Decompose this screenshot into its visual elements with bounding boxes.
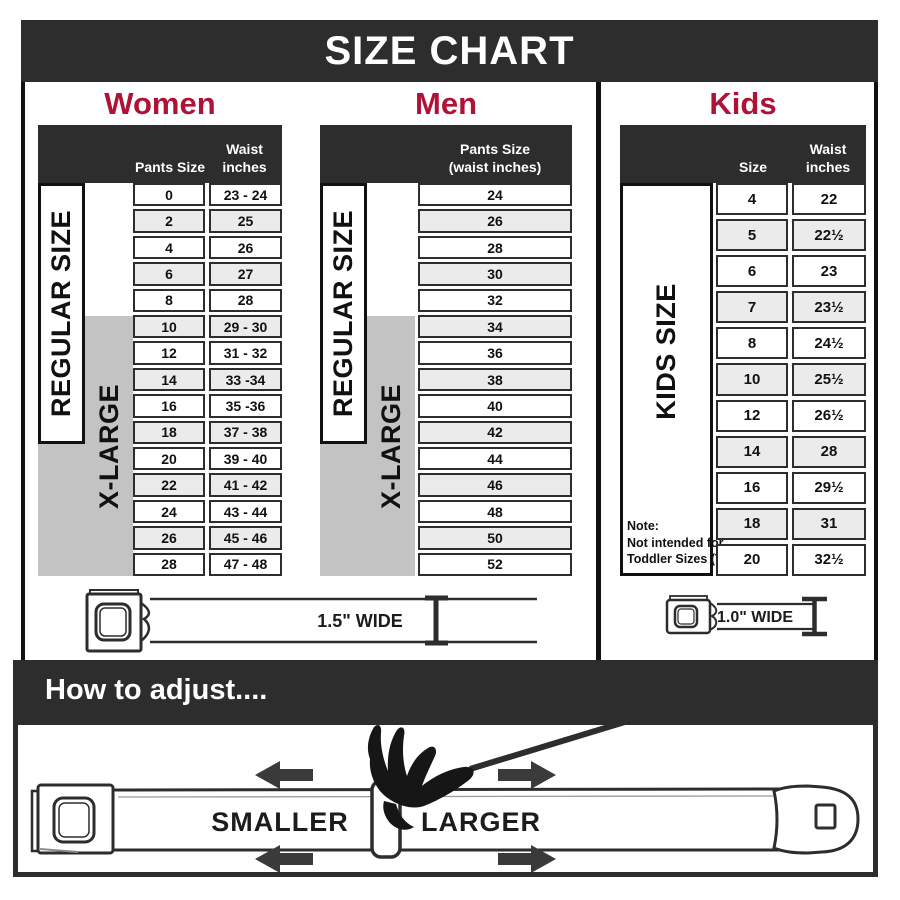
table-row: 28 47 - 48 <box>133 553 282 576</box>
waist-inches-cell: 32½ <box>792 544 866 576</box>
pants-size-cell: 10 <box>133 315 205 338</box>
pants-size-cell: 48 <box>418 500 572 523</box>
kids-note: Note: Not intended for Toddler Sizes (T) <box>627 518 727 567</box>
table-row: 6 27 <box>133 262 282 285</box>
title-banner: SIZE CHART <box>21 20 878 82</box>
size-cell: 14 <box>716 436 788 468</box>
men-table-header: Pants Size (waist inches) <box>320 125 572 183</box>
waist-inches-cell: 41 - 42 <box>209 473 282 496</box>
measurement-bracket-icon <box>425 598 448 643</box>
kids-col-waist-inches: Waist inches <box>790 141 866 176</box>
table-row: 46 <box>418 473 572 496</box>
pants-size-cell: 28 <box>418 236 572 259</box>
frame-left-border <box>21 82 25 660</box>
seatbelt-buckle-icon <box>667 596 716 633</box>
pants-size-cell: 40 <box>418 394 572 417</box>
table-row: 30 <box>418 262 572 285</box>
pants-size-cell: 26 <box>418 209 572 232</box>
pants-size-cell: 4 <box>133 236 205 259</box>
kids-heading: Kids <box>620 86 866 122</box>
seatbelt-buckle-icon <box>87 590 149 651</box>
table-row: 26 45 - 46 <box>133 526 282 549</box>
pants-size-cell: 52 <box>418 553 572 576</box>
table-row: 24 <box>418 183 572 206</box>
men-regular-size-label: REGULAR SIZE <box>328 210 359 417</box>
waist-inches-cell: 22½ <box>792 219 866 251</box>
table-row: 14 33 -34 <box>133 368 282 391</box>
table-row: 36 <box>418 341 572 364</box>
waist-inches-cell: 29 - 30 <box>209 315 282 338</box>
women-col-pants-size: Pants Size <box>133 159 207 177</box>
pants-size-cell: 38 <box>418 368 572 391</box>
table-row: 18 37 - 38 <box>133 421 282 444</box>
pants-size-cell: 24 <box>133 500 205 523</box>
table-row: 6 23 <box>716 255 866 287</box>
adjust-illustration: SMALLER LARGER <box>18 725 873 872</box>
table-row: 50 <box>418 526 572 549</box>
table-row: 8 28 <box>133 289 282 312</box>
pants-size-cell: 18 <box>133 421 205 444</box>
pants-size-cell: 24 <box>418 183 572 206</box>
kids-section-divider <box>596 82 601 660</box>
table-row: 10 25½ <box>716 363 866 395</box>
men-size-table: 24 26 28 30 32 34 36 38 40 42 44 46 <box>418 183 572 576</box>
women-xlarge-label: X-LARGE <box>94 384 125 509</box>
table-row: 52 <box>418 553 572 576</box>
waist-inches-cell: 33 -34 <box>209 368 282 391</box>
table-row: 42 <box>418 421 572 444</box>
waist-inches-cell: 28 <box>792 436 866 468</box>
belt-tip-icon <box>774 786 858 853</box>
pants-size-cell: 44 <box>418 447 572 470</box>
waist-inches-cell: 25½ <box>792 363 866 395</box>
table-row: 44 <box>418 447 572 470</box>
frame-right-border <box>874 82 878 660</box>
waist-inches-cell: 27 <box>209 262 282 285</box>
table-row: 40 <box>418 394 572 417</box>
table-row: 12 26½ <box>716 400 866 432</box>
waist-inches-cell: 23 - 24 <box>209 183 282 206</box>
waist-inches-cell: 45 - 46 <box>209 526 282 549</box>
adult-belt-width-label: 1.5" WIDE <box>317 611 403 631</box>
table-row: 20 32½ <box>716 544 866 576</box>
arrow-left-icon <box>255 761 313 789</box>
table-row: 32 <box>418 289 572 312</box>
pants-size-cell: 32 <box>418 289 572 312</box>
size-cell: 6 <box>716 255 788 287</box>
adult-belt-illustration: 1.5" WIDE <box>30 585 575 657</box>
waist-inches-cell: 37 - 38 <box>209 421 282 444</box>
women-regular-size-band: REGULAR SIZE <box>38 183 85 444</box>
table-row: 7 23½ <box>716 291 866 323</box>
kids-size-band: KIDS SIZE Note: Not intended for Toddler… <box>620 183 713 576</box>
pants-size-cell: 8 <box>133 289 205 312</box>
size-cell: 7 <box>716 291 788 323</box>
size-cell: 20 <box>716 544 788 576</box>
size-cell: 10 <box>716 363 788 395</box>
table-row: 18 31 <box>716 508 866 540</box>
table-row: 34 <box>418 315 572 338</box>
table-row: 16 29½ <box>716 472 866 504</box>
adjust-illustration-box: SMALLER LARGER <box>13 720 878 877</box>
waist-inches-cell: 24½ <box>792 327 866 359</box>
table-row: 38 <box>418 368 572 391</box>
kids-size-label: KIDS SIZE <box>651 283 682 420</box>
waist-inches-cell: 39 - 40 <box>209 447 282 470</box>
waist-inches-cell: 35 -36 <box>209 394 282 417</box>
women-heading: Women <box>38 86 282 122</box>
kids-belt-illustration: 1.0" WIDE <box>615 588 875 643</box>
waist-inches-cell: 25 <box>209 209 282 232</box>
table-row: 0 23 - 24 <box>133 183 282 206</box>
table-row: 8 24½ <box>716 327 866 359</box>
waist-inches-cell: 26 <box>209 236 282 259</box>
size-cell: 18 <box>716 508 788 540</box>
table-row: 26 <box>418 209 572 232</box>
pants-size-cell: 26 <box>133 526 205 549</box>
women-size-table: 0 23 - 24 2 25 4 26 6 27 8 28 10 29 - 30… <box>133 183 282 576</box>
men-xlarge-label: X-LARGE <box>376 384 407 509</box>
women-regular-size-label: REGULAR SIZE <box>46 210 77 417</box>
kids-size-table: 4 22 5 22½ 6 23 7 23½ 8 24½ 10 25½ 12 26… <box>716 183 866 576</box>
pants-size-cell: 12 <box>133 341 205 364</box>
size-cell: 12 <box>716 400 788 432</box>
women-xlarge-band: X-LARGE <box>85 316 133 576</box>
table-row: 4 22 <box>716 183 866 215</box>
table-row: 14 28 <box>716 436 866 468</box>
pants-size-cell: 16 <box>133 394 205 417</box>
pants-size-cell: 2 <box>133 209 205 232</box>
larger-label: LARGER <box>421 807 541 837</box>
pants-size-cell: 0 <box>133 183 205 206</box>
pants-size-cell: 6 <box>133 262 205 285</box>
table-row: 24 43 - 44 <box>133 500 282 523</box>
pants-size-cell: 46 <box>418 473 572 496</box>
waist-inches-cell: 47 - 48 <box>209 553 282 576</box>
pants-size-cell: 28 <box>133 553 205 576</box>
pants-size-cell: 22 <box>133 473 205 496</box>
kids-belt-width-label: 1.0" WIDE <box>717 609 793 626</box>
women-col-waist-inches: Waist inches <box>207 141 282 176</box>
size-cell: 4 <box>716 183 788 215</box>
waist-inches-cell: 28 <box>209 289 282 312</box>
men-xlarge-band: X-LARGE <box>367 316 415 576</box>
men-col-pants-size: Pants Size (waist inches) <box>418 141 572 176</box>
waist-inches-cell: 31 - 32 <box>209 341 282 364</box>
pants-size-cell: 50 <box>418 526 572 549</box>
table-row: 5 22½ <box>716 219 866 251</box>
size-cell: 16 <box>716 472 788 504</box>
pants-size-cell: 42 <box>418 421 572 444</box>
pants-size-cell: 30 <box>418 262 572 285</box>
table-row: 48 <box>418 500 572 523</box>
table-row: 28 <box>418 236 572 259</box>
women-xlarge-band-lower <box>38 444 85 576</box>
table-row: 10 29 - 30 <box>133 315 282 338</box>
waist-inches-cell: 26½ <box>792 400 866 432</box>
table-row: 12 31 - 32 <box>133 341 282 364</box>
men-heading: Men <box>320 86 572 122</box>
size-cell: 5 <box>716 219 788 251</box>
size-chart-page: SIZE CHART Women Men Kids Pants Size Wai… <box>0 0 900 900</box>
waist-inches-cell: 23 <box>792 255 866 287</box>
table-row: 2 25 <box>133 209 282 232</box>
smaller-label: SMALLER <box>211 807 349 837</box>
seatbelt-buckle-icon <box>32 785 113 853</box>
pants-size-cell: 34 <box>418 315 572 338</box>
waist-inches-cell: 43 - 44 <box>209 500 282 523</box>
waist-inches-cell: 31 <box>792 508 866 540</box>
men-xlarge-band-lower <box>320 444 367 576</box>
kids-table-header: Size Waist inches <box>620 125 866 183</box>
size-cell: 8 <box>716 327 788 359</box>
waist-inches-cell: 23½ <box>792 291 866 323</box>
men-regular-size-band: REGULAR SIZE <box>320 183 367 444</box>
table-row: 16 35 -36 <box>133 394 282 417</box>
table-row: 22 41 - 42 <box>133 473 282 496</box>
women-table-header: Pants Size Waist inches <box>38 125 282 183</box>
table-row: 4 26 <box>133 236 282 259</box>
page-title: SIZE CHART <box>325 29 575 74</box>
pants-size-cell: 36 <box>418 341 572 364</box>
kids-col-size: Size <box>716 159 790 177</box>
pants-size-cell: 14 <box>133 368 205 391</box>
waist-inches-cell: 22 <box>792 183 866 215</box>
table-row: 20 39 - 40 <box>133 447 282 470</box>
arrow-right-icon <box>498 761 556 789</box>
how-to-adjust-bar: How to adjust.... <box>13 660 878 720</box>
how-to-adjust-heading: How to adjust.... <box>13 674 267 707</box>
waist-inches-cell: 29½ <box>792 472 866 504</box>
pants-size-cell: 20 <box>133 447 205 470</box>
